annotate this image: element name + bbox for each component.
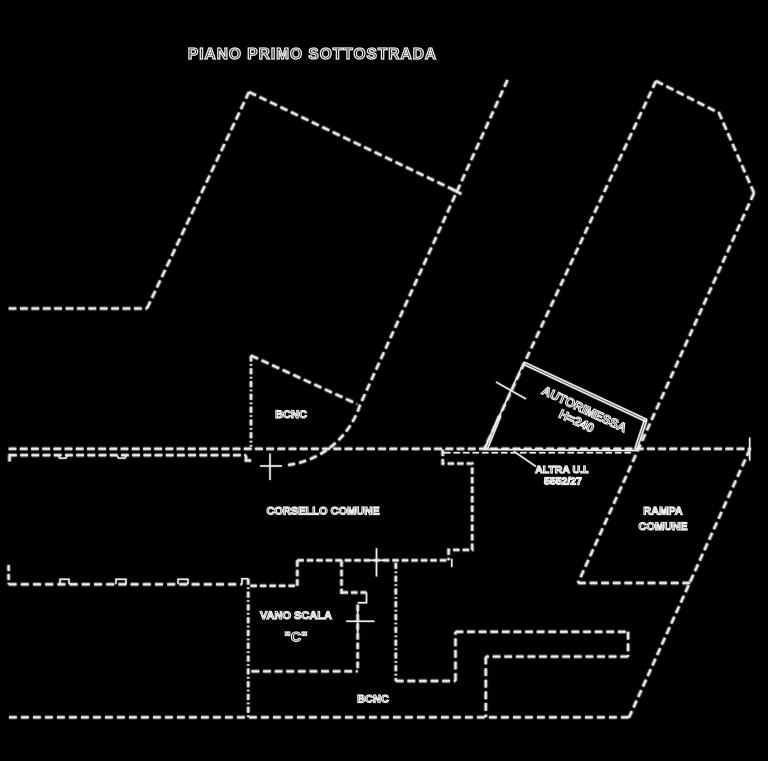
svg-text:COMUNE: COMUNE	[639, 521, 688, 533]
svg-text:CORSELLO COMUNE: CORSELLO COMUNE	[266, 506, 379, 518]
svg-text:ALTRA U.I.: ALTRA U.I.	[535, 464, 589, 476]
svg-text:BCNC: BCNC	[357, 694, 389, 706]
svg-text:BCNC: BCNC	[275, 409, 307, 421]
svg-text:PIANO PRIMO SOTTOSTRADA: PIANO PRIMO SOTTOSTRADA	[188, 46, 437, 63]
svg-text:RAMPA: RAMPA	[643, 506, 683, 518]
svg-text:"C": "C"	[284, 629, 307, 645]
svg-text:5552/27: 5552/27	[544, 476, 582, 488]
svg-text:VANO SCALA: VANO SCALA	[260, 610, 332, 622]
